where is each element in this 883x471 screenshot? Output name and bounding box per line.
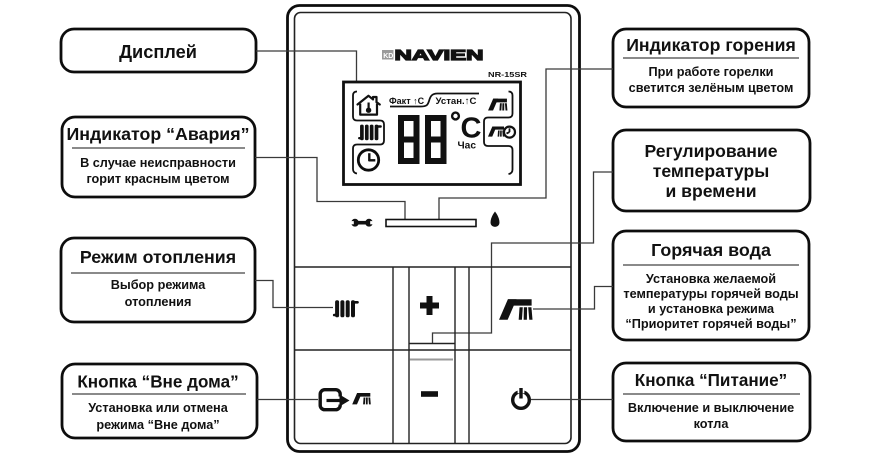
svg-text:NAVIEN: NAVIEN [395, 48, 484, 64]
svg-text:При работе горелки: При работе горелки [649, 65, 774, 79]
svg-text:Включение и выключение: Включение и выключение [628, 401, 794, 415]
svg-text:отопления: отопления [125, 295, 192, 309]
svg-text:Факт ↑С: Факт ↑С [389, 96, 425, 106]
svg-text:светится зелёным цветом: светится зелёным цветом [629, 81, 794, 95]
svg-text:температуры горячей воды: температуры горячей воды [623, 287, 798, 301]
svg-text:горит красным цветом: горит красным цветом [86, 172, 229, 186]
svg-text:Кнопка “Вне дома”: Кнопка “Вне дома” [77, 373, 238, 392]
svg-text:Установка желаемой: Установка желаемой [646, 272, 776, 286]
svg-text:Установка или отмена: Установка или отмена [88, 401, 228, 415]
svg-text:Режим отопления: Режим отопления [80, 247, 236, 267]
svg-text:Устан.↑С: Устан.↑С [436, 96, 477, 107]
svg-text:режима “Вне дома”: режима “Вне дома” [96, 418, 219, 432]
svg-text:Выбор режима: Выбор режима [111, 278, 207, 292]
svg-text:Час: Час [458, 141, 477, 152]
svg-text:котла: котла [694, 417, 730, 431]
svg-text:“Приоритет горячей воды”: “Приоритет горячей воды” [625, 317, 796, 331]
svg-text:В случае неисправности: В случае неисправности [80, 156, 236, 170]
svg-text:Кнопка “Питание”: Кнопка “Питание” [635, 371, 787, 390]
svg-text:KD: KD [383, 53, 393, 60]
svg-text:Индикатор горения: Индикатор горения [626, 35, 796, 55]
svg-text:Дисплей: Дисплей [119, 42, 197, 62]
svg-text:NR-15SR: NR-15SR [488, 70, 528, 79]
svg-text:и установка режима: и установка режима [648, 302, 775, 316]
svg-text:Индикатор “Авария”: Индикатор “Авария” [66, 124, 249, 144]
svg-text:Горячая вода: Горячая вода [651, 240, 772, 260]
svg-text:Регулирование: Регулирование [644, 141, 777, 161]
svg-text:температуры: температуры [653, 161, 770, 181]
svg-text:и времени: и времени [665, 181, 756, 201]
